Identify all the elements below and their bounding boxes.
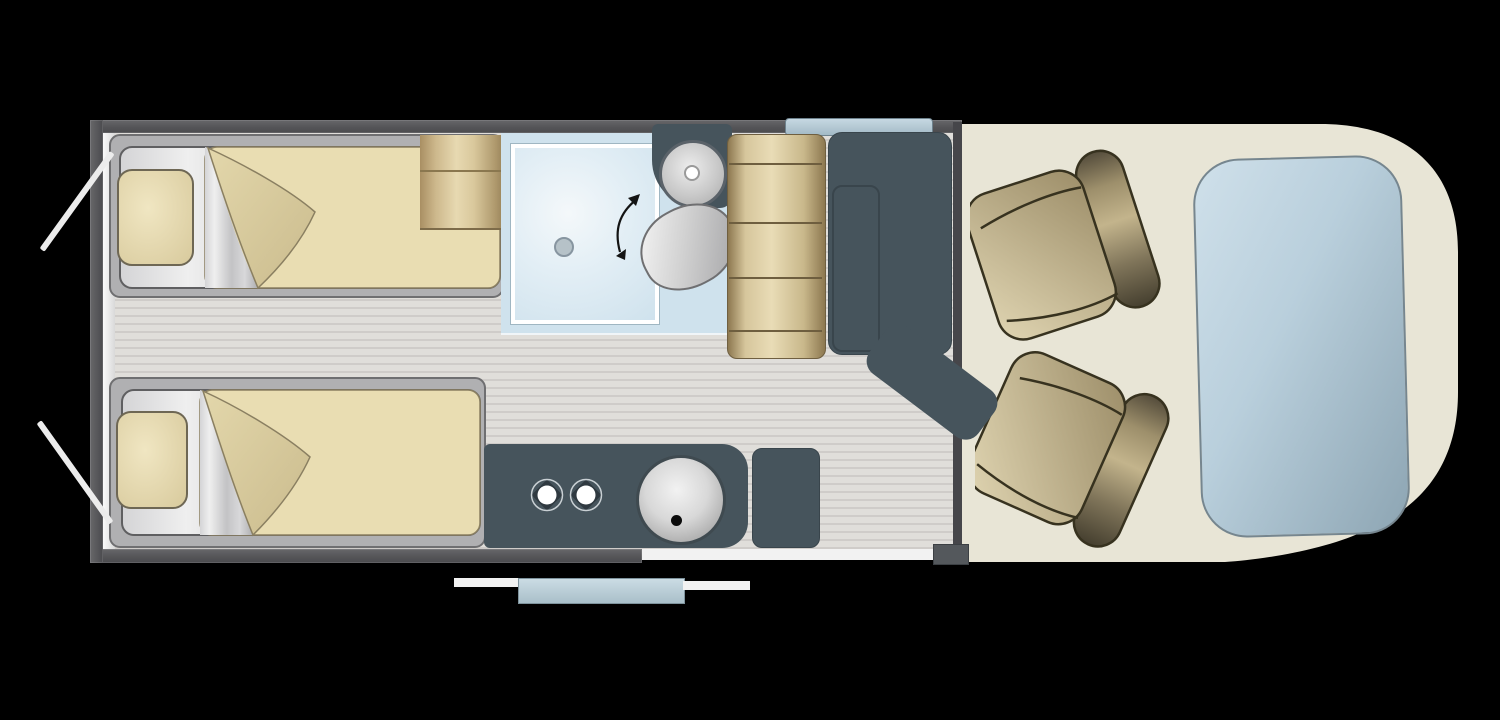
bench-seam: [729, 222, 822, 224]
wardrobe: [420, 135, 507, 230]
seat-group: [970, 145, 1166, 348]
bed-bottom: [105, 373, 490, 553]
shower-drain-icon: [554, 237, 574, 257]
windshield: [1192, 154, 1411, 538]
door-swing-arrow-icon: [607, 192, 647, 260]
hob-burners-icon: [520, 468, 612, 522]
cab-seat-upper: [970, 138, 1180, 348]
washbasin-drain-icon: [684, 165, 700, 181]
sliding-door-opening: [642, 549, 933, 560]
bench-seat: [727, 134, 826, 359]
table-leaf-outline: [832, 185, 880, 352]
wardrobe-seam: [420, 170, 507, 172]
cab-partition: [953, 122, 962, 563]
fridge-unit: [752, 448, 820, 548]
floor-plan-stage: [0, 0, 1500, 720]
b-pillar: [933, 544, 969, 565]
seat-group: [975, 347, 1176, 554]
kitchen-sink: [636, 455, 726, 545]
cab-seat-lower: [975, 347, 1185, 557]
door-frame-bar: [683, 581, 750, 590]
door-frame-bar: [454, 578, 518, 587]
pillow: [118, 170, 193, 265]
entry-step: [518, 578, 685, 604]
pillow: [117, 412, 187, 508]
faucet-icon: [671, 515, 682, 526]
bench-seam: [729, 163, 822, 165]
bench-seam: [729, 330, 822, 332]
burner-icon: [531, 479, 562, 510]
bench-seam: [729, 277, 822, 279]
burner-icon: [570, 479, 601, 510]
